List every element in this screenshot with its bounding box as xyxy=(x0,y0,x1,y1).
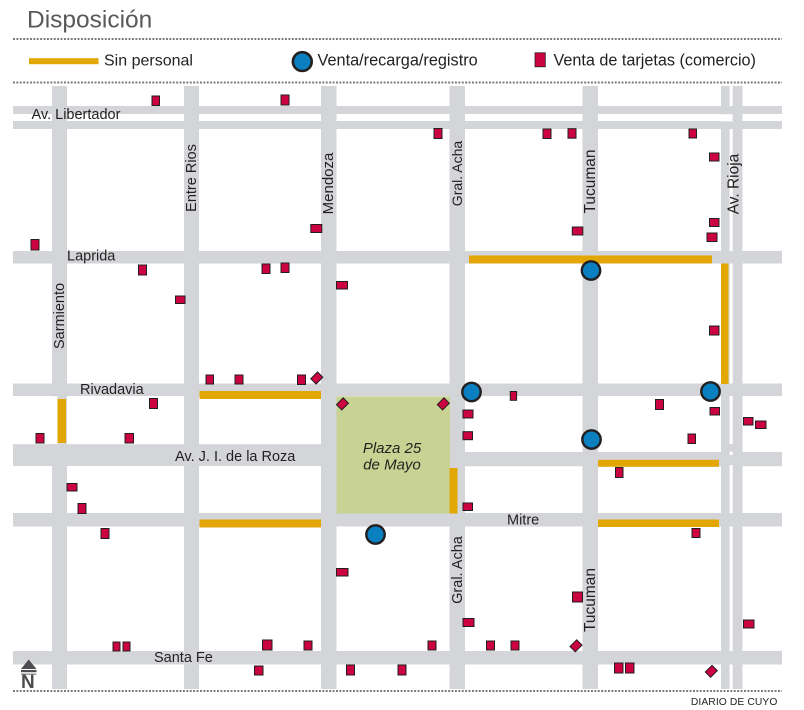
svg-text:Venta de tarjetas (comercio): Venta de tarjetas (comercio) xyxy=(554,52,756,70)
svg-text:Av. J. I. de la Roza: Av. J. I. de la Roza xyxy=(175,449,296,465)
svg-text:Mendoza: Mendoza xyxy=(320,152,337,214)
svg-text:Gral. Acha: Gral. Acha xyxy=(450,535,466,604)
svg-text:N: N xyxy=(21,672,35,693)
svg-text:Av. Rioja: Av. Rioja xyxy=(726,153,743,214)
svg-text:Disposición: Disposición xyxy=(27,7,152,34)
svg-text:Av. Libertador: Av. Libertador xyxy=(32,107,121,123)
svg-text:Santa Fe: Santa Fe xyxy=(154,650,213,666)
svg-text:Plaza 25: Plaza 25 xyxy=(363,440,422,457)
svg-text:Venta/recarga/registro: Venta/recarga/registro xyxy=(318,52,478,70)
svg-text:Sarmiento: Sarmiento xyxy=(52,283,68,349)
svg-text:Rivadavia: Rivadavia xyxy=(80,382,145,398)
svg-text:Tucuman: Tucuman xyxy=(582,568,599,632)
svg-text:Tucuman: Tucuman xyxy=(582,149,599,213)
svg-text:Entre Rios: Entre Rios xyxy=(184,144,200,212)
svg-text:Mitre: Mitre xyxy=(507,513,539,529)
svg-text:Gral. Acha: Gral. Acha xyxy=(449,141,465,207)
svg-text:DIARIO DE CUYO: DIARIO DE CUYO xyxy=(691,697,778,708)
svg-text:Sin personal: Sin personal xyxy=(104,53,193,70)
svg-text:de Mayo: de Mayo xyxy=(363,457,421,474)
svg-text:Laprida: Laprida xyxy=(67,249,116,265)
